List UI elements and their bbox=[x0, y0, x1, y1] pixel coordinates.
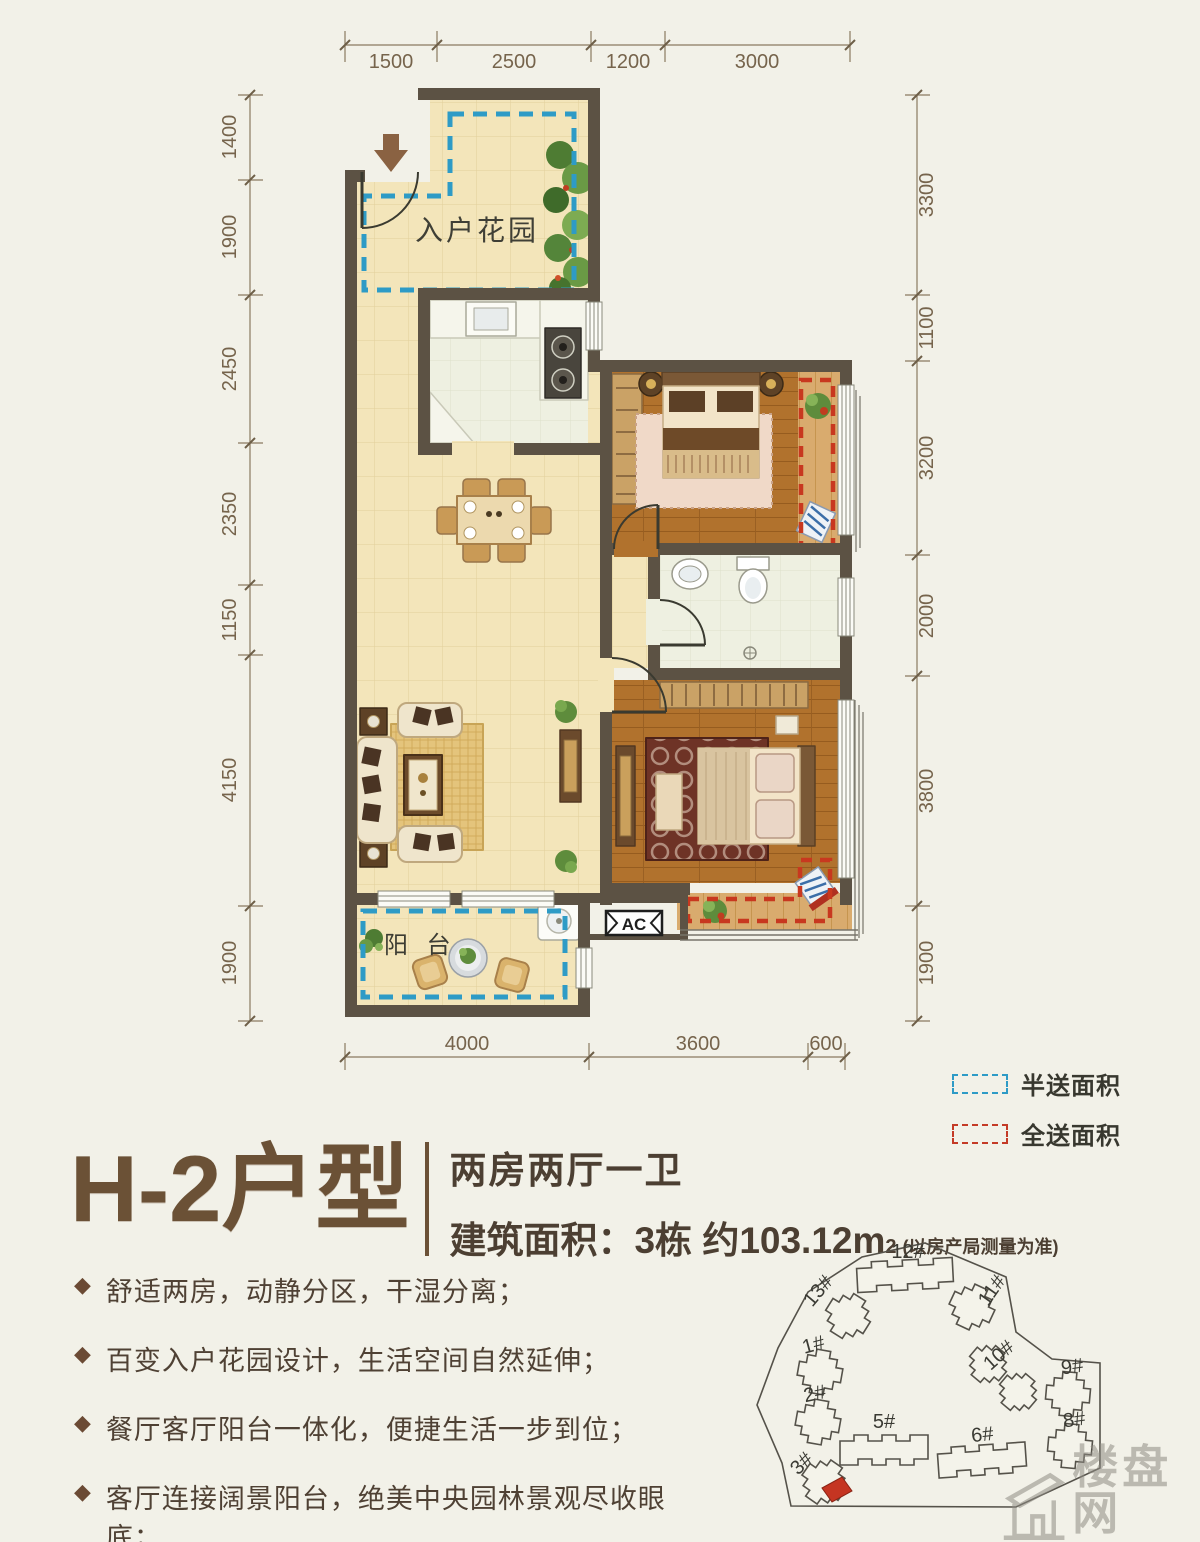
area-label: 建筑面积： bbox=[449, 1210, 634, 1264]
dim-label: 4000 bbox=[445, 1033, 490, 1055]
dim-label: 1150 bbox=[219, 598, 241, 641]
feature-item: ◆ 百变入户花园设计，生活空间自然延伸； bbox=[74, 1339, 674, 1378]
building-5 bbox=[840, 1435, 928, 1465]
wardrobe-icon bbox=[660, 682, 808, 708]
dim-label: 1100 bbox=[916, 306, 938, 349]
dim-label: 3000 bbox=[735, 51, 780, 73]
unit-layout: 两房两厅一卫 bbox=[449, 1140, 1058, 1194]
legend-row-half-bonus: 半送面积 bbox=[952, 1066, 1121, 1101]
dim-label: 1900 bbox=[219, 941, 241, 986]
title-divider bbox=[425, 1142, 429, 1256]
window-icon bbox=[586, 302, 602, 350]
room-label-balcony: 阳 台 bbox=[384, 932, 457, 959]
window-icon bbox=[838, 578, 854, 636]
dim-label: 600 bbox=[809, 1033, 842, 1055]
room-label-entry-garden: 入户花园 bbox=[415, 215, 539, 246]
ac-platform: AC bbox=[606, 911, 662, 935]
entry-arrow-icon bbox=[374, 134, 408, 172]
window-icon bbox=[838, 385, 854, 535]
building-label: 8# bbox=[1062, 1407, 1088, 1432]
dim-label: 3800 bbox=[916, 769, 938, 814]
feature-text: 客厅连接阔景阳台，绝美中央园林景观尽收眼底； bbox=[106, 1477, 674, 1542]
feature-text: 餐厅客厅阳台一体化，便捷生活一步到位； bbox=[106, 1408, 638, 1447]
dim-label: 1900 bbox=[219, 215, 241, 260]
site-buildings bbox=[793, 1258, 1094, 1513]
feature-text: 舒适两房，动静分区，干湿分离； bbox=[106, 1270, 526, 1309]
dim-label: 2350 bbox=[219, 492, 241, 537]
window-icon bbox=[576, 948, 592, 988]
dim-label: 1900 bbox=[916, 941, 938, 986]
diamond-bullet-icon: ◆ bbox=[74, 1339, 92, 1369]
building-label: 9# bbox=[1060, 1354, 1086, 1379]
dim-label: 3300 bbox=[916, 173, 938, 218]
diamond-bullet-icon: ◆ bbox=[74, 1270, 92, 1300]
floor-plan: AC 入户花园 阳 台 1500 2500 1200 3000 4000 bbox=[0, 0, 1200, 1115]
dim-label: 4150 bbox=[219, 758, 241, 803]
diamond-bullet-icon: ◆ bbox=[74, 1408, 92, 1438]
dim-label: 1400 bbox=[219, 115, 241, 160]
half-bonus-swatch-icon bbox=[952, 1074, 1008, 1094]
dim-label: 3200 bbox=[916, 436, 938, 481]
brochure-page: AC 入户花园 阳 台 1500 2500 1200 3000 4000 bbox=[0, 0, 1200, 1542]
bench-icon bbox=[656, 774, 682, 830]
building-label: 6# bbox=[970, 1423, 995, 1447]
dim-label: 2000 bbox=[916, 594, 938, 639]
window-icon bbox=[462, 891, 554, 907]
unit-title: H-2户型 bbox=[70, 1136, 409, 1264]
ac-label: AC bbox=[622, 915, 647, 934]
site-plan: 12# 13# 11# 1# 10# 9# 2# 5# 6# 8# 3# bbox=[740, 1228, 1190, 1528]
feature-item: ◆ 客厅连接阔景阳台，绝美中央园林景观尽收眼底； bbox=[74, 1477, 674, 1542]
building-label: 5# bbox=[873, 1411, 896, 1433]
diamond-bullet-icon: ◆ bbox=[74, 1477, 92, 1507]
legend-label: 半送面积 bbox=[1021, 1066, 1121, 1101]
window-icon bbox=[378, 891, 450, 907]
feature-item: ◆ 餐厅客厅阳台一体化，便捷生活一步到位； bbox=[74, 1408, 674, 1447]
feature-text: 百变入户花园设计，生活空间自然延伸； bbox=[106, 1339, 610, 1378]
dim-label: 3600 bbox=[676, 1033, 721, 1055]
dim-label: 1200 bbox=[606, 51, 651, 73]
dim-label: 2450 bbox=[219, 347, 241, 392]
feature-item: ◆ 舒适两房，动静分区，干湿分离； bbox=[74, 1270, 674, 1309]
window-icon bbox=[838, 700, 854, 878]
dim-label: 2500 bbox=[492, 51, 537, 73]
building-label: 12# bbox=[891, 1241, 925, 1263]
dim-label: 1500 bbox=[369, 51, 414, 73]
feature-list: ◆ 舒适两房，动静分区，干湿分离； ◆ 百变入户花园设计，生活空间自然延伸； ◆… bbox=[74, 1270, 674, 1542]
toilet-icon bbox=[737, 557, 769, 570]
building-6 bbox=[937, 1442, 1027, 1478]
